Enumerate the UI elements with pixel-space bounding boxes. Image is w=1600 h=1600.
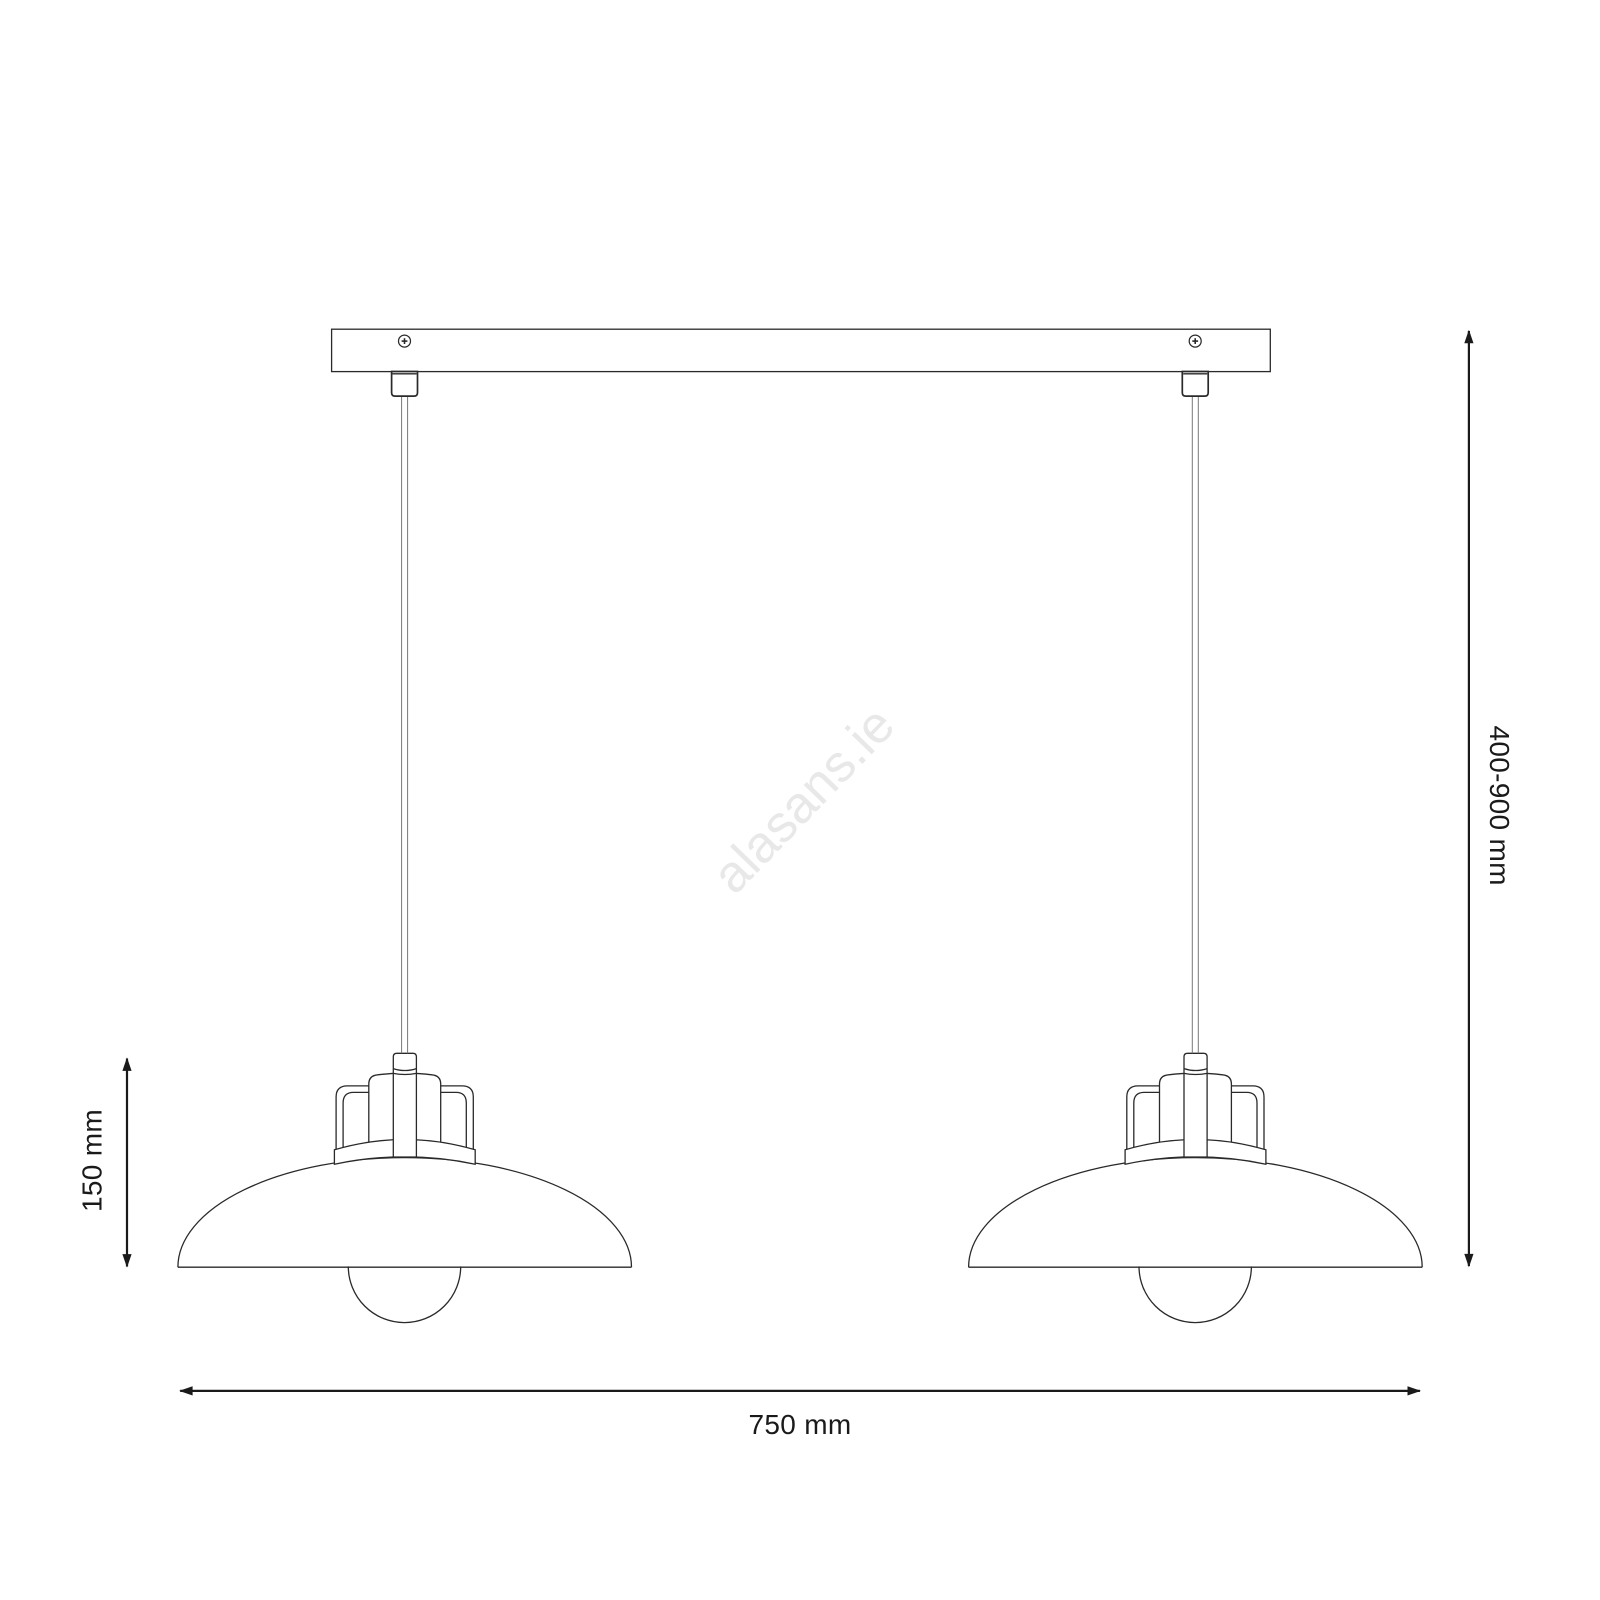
svg-text:400-900 mm: 400-900 mm bbox=[1484, 726, 1515, 886]
svg-text:alasans.ie: alasans.ie bbox=[702, 696, 906, 905]
svg-text:750 mm: 750 mm bbox=[749, 1409, 852, 1440]
svg-text:150 mm: 150 mm bbox=[77, 1109, 108, 1212]
